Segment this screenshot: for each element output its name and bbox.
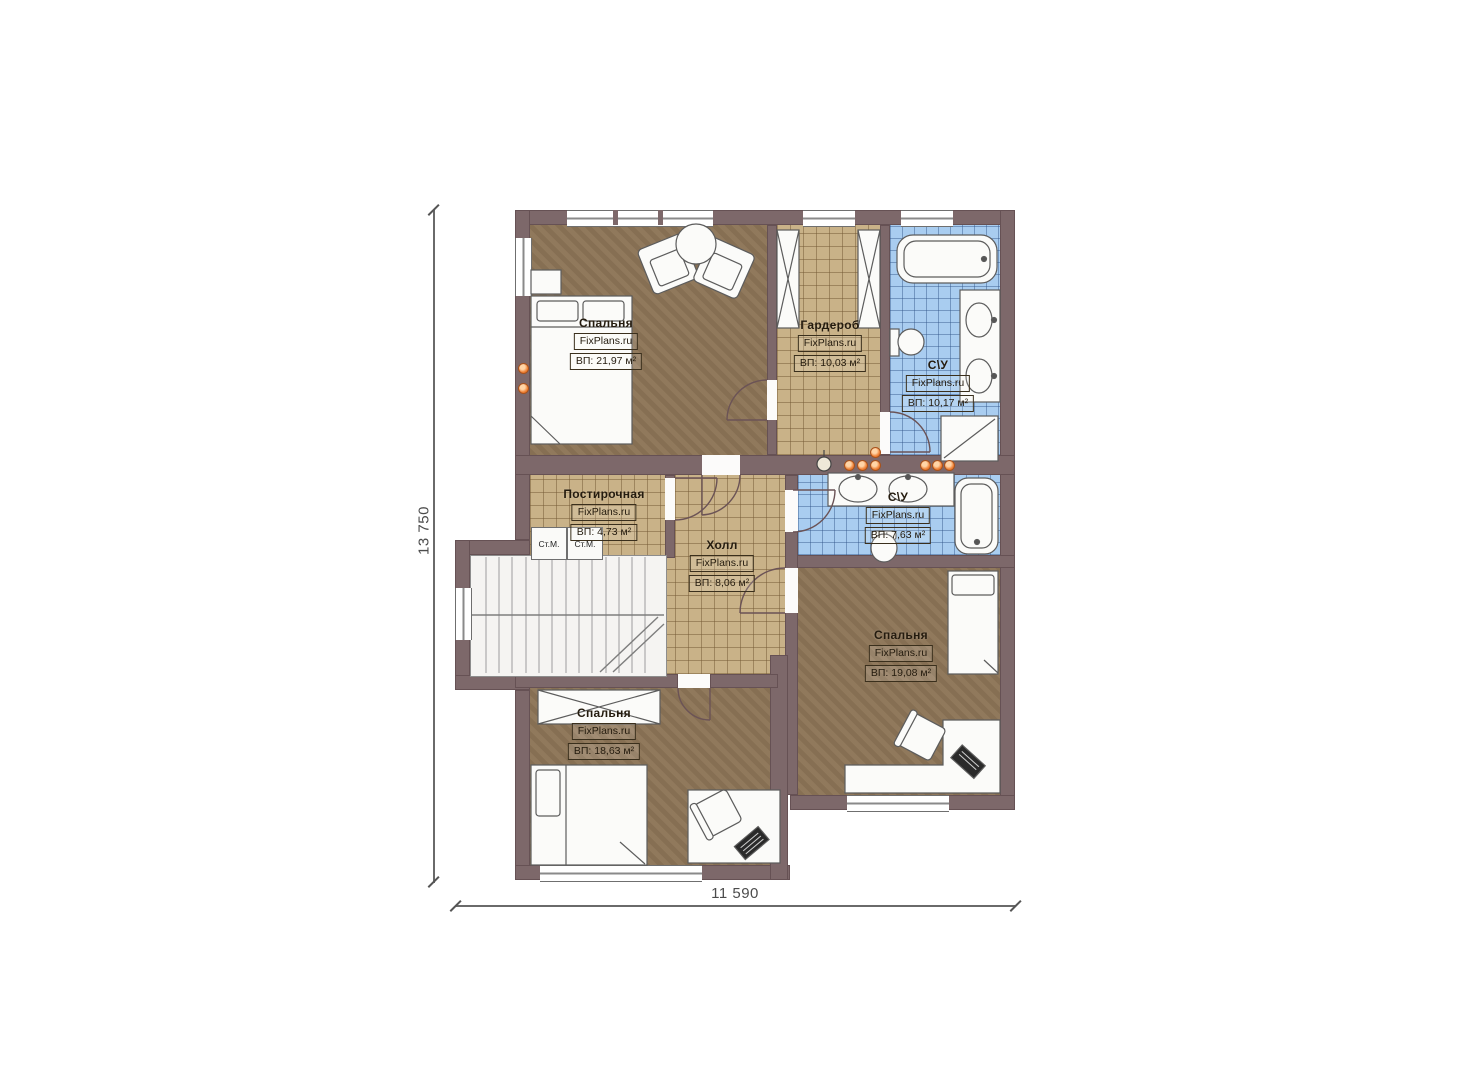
room-watermark: FixPlans.ru bbox=[906, 375, 971, 392]
wall-bedroom-wardrobe bbox=[767, 225, 777, 455]
room-area: ВП: 19,08 м² bbox=[865, 665, 937, 682]
window-bottom-left bbox=[540, 865, 702, 882]
window-top-3 bbox=[901, 210, 953, 227]
radiator-dot bbox=[920, 460, 931, 471]
window-bay bbox=[455, 588, 472, 640]
door-opening-bedroom-right bbox=[785, 568, 798, 613]
floor-bathroom-top bbox=[890, 225, 1000, 455]
room-watermark: FixPlans.ru bbox=[574, 333, 639, 350]
room-name: Спальня bbox=[577, 706, 631, 720]
radiator-dot bbox=[932, 460, 943, 471]
wall-right bbox=[1000, 210, 1015, 810]
room-watermark: FixPlans.ru bbox=[866, 507, 931, 524]
radiator-dot bbox=[518, 363, 529, 374]
room-name: Спальня bbox=[874, 628, 928, 642]
window-bottom-right bbox=[847, 795, 949, 812]
door-opening-laundry bbox=[665, 478, 675, 520]
room-name: Гардероб bbox=[800, 318, 859, 332]
radiator-dot bbox=[944, 460, 955, 471]
room-area: ВП: 21,97 м² bbox=[570, 353, 642, 370]
wall-bedrooms-separator bbox=[770, 655, 788, 880]
wall-bedroom-bottom-top-b bbox=[710, 674, 778, 688]
room-name: Спальня bbox=[579, 316, 633, 330]
room-name: Постирочная bbox=[563, 487, 644, 501]
wall-bath-middle-bottom bbox=[788, 555, 1015, 568]
floor-bedroom-top-left bbox=[530, 225, 767, 455]
radiator-dot bbox=[870, 460, 881, 471]
floor-plan-page: Спальня FixPlans.ru ВП: 21,97 м² Гардеро… bbox=[0, 0, 1474, 1080]
dimension-label-horizontal: 11 590 bbox=[690, 885, 780, 902]
room-label-bedroom-bottom: Спальня FixPlans.ru ВП: 18,63 м² bbox=[568, 706, 640, 760]
room-label-wardrobe: Гардероб FixPlans.ru ВП: 10,03 м² bbox=[794, 318, 866, 372]
radiator-dot bbox=[870, 447, 881, 458]
dimension-line-horizontal bbox=[455, 905, 1015, 907]
room-label-hall: Холл FixPlans.ru ВП: 8,06 м² bbox=[689, 538, 755, 592]
door-opening-bedroom-bottom bbox=[678, 674, 710, 688]
dimension-label-vertical: 13 750 bbox=[416, 503, 433, 559]
room-name: С\У bbox=[928, 358, 948, 372]
door-opening-bedroom-top bbox=[702, 455, 740, 475]
room-label-bedroom-top-left: Спальня FixPlans.ru ВП: 21,97 м² bbox=[570, 316, 642, 370]
floor-bedroom-bottom bbox=[530, 688, 770, 865]
radiator-dot bbox=[518, 383, 529, 394]
window-mullion bbox=[613, 210, 618, 225]
room-watermark: FixPlans.ru bbox=[690, 555, 755, 572]
room-label-bedroom-right: Спальня FixPlans.ru ВП: 19,08 м² bbox=[865, 628, 937, 682]
room-label-laundry: Постирочная FixPlans.ru ВП: 4,73 м² bbox=[563, 487, 644, 541]
room-watermark: FixPlans.ru bbox=[869, 645, 934, 662]
radiator-dot bbox=[857, 460, 868, 471]
room-area: ВП: 10,17 м² bbox=[902, 395, 974, 412]
door-opening-wardrobe-bath bbox=[880, 412, 890, 454]
wall-left-lower bbox=[515, 690, 530, 880]
door-opening-bedroom-wardrobe bbox=[767, 380, 777, 420]
window-top-2 bbox=[803, 210, 855, 227]
washer-label: Ст.М. bbox=[539, 539, 560, 549]
radiator-dot bbox=[844, 460, 855, 471]
room-name: Холл bbox=[706, 538, 737, 552]
window-left bbox=[515, 238, 532, 296]
window-top-1 bbox=[567, 210, 713, 227]
window-mullion bbox=[658, 210, 663, 225]
staircase bbox=[470, 555, 667, 677]
washing-machine: Ст.М. bbox=[531, 527, 567, 560]
room-watermark: FixPlans.ru bbox=[572, 723, 637, 740]
room-label-bathroom-middle: С\У FixPlans.ru ВП: 7,63 м² bbox=[865, 490, 931, 544]
dimension-line-vertical bbox=[433, 210, 435, 883]
door-opening-bath-middle bbox=[785, 490, 798, 532]
room-area: ВП: 10,03 м² bbox=[794, 355, 866, 372]
room-area: ВП: 8,06 м² bbox=[689, 575, 755, 592]
room-watermark: FixPlans.ru bbox=[798, 335, 863, 352]
room-area: ВП: 7,63 м² bbox=[865, 527, 931, 544]
room-area: ВП: 18,63 м² bbox=[568, 743, 640, 760]
room-area: ВП: 4,73 м² bbox=[571, 524, 637, 541]
room-label-bathroom-top: С\У FixPlans.ru ВП: 10,17 м² bbox=[902, 358, 974, 412]
room-watermark: FixPlans.ru bbox=[572, 504, 637, 521]
room-name: С\У bbox=[888, 490, 908, 504]
